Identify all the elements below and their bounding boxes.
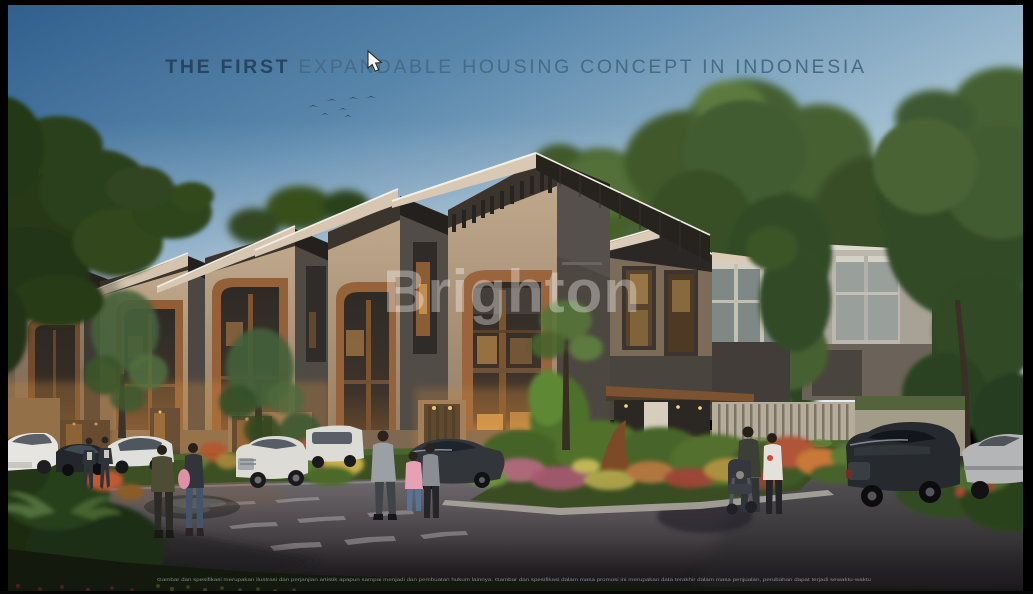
svg-text:Gambar dan spesifikasi merupak: Gambar dan spesifikasi merupakan ilustra…: [157, 577, 871, 583]
svg-text:THE FIRST EXPANDABLE HOUSING C: THE FIRST EXPANDABLE HOUSING CONCEPT IN …: [165, 56, 867, 78]
svg-text:Brighton: Brighton: [383, 258, 641, 325]
